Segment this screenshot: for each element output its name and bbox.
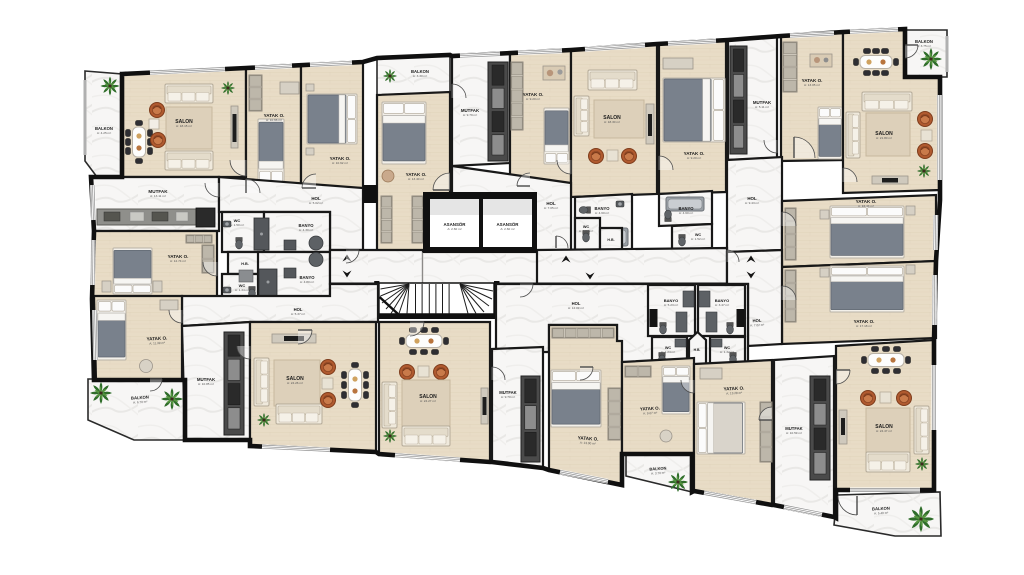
svg-text:A: 5.23 m²: A: 5.23 m² [664, 303, 678, 307]
svg-text:A: 2.60 m²: A: 2.60 m² [447, 227, 461, 231]
svg-text:A: 10.62 m²: A: 10.62 m² [332, 161, 348, 165]
svg-text:A: 9.70 m²: A: 9.70 m² [501, 395, 515, 399]
svg-text:A: 13.40 m²: A: 13.40 m² [408, 177, 424, 181]
svg-text:A: 5.40 m²: A: 5.40 m² [874, 511, 888, 516]
svg-text:A: 9.79 m²: A: 9.79 m² [463, 113, 477, 117]
svg-text:A: 13.28 m²: A: 13.28 m² [726, 391, 742, 396]
svg-text:A: 1.50 m²: A: 1.50 m² [230, 223, 244, 227]
svg-text:A: 24.47 m²: A: 24.47 m² [876, 429, 892, 433]
svg-text:A: 12.74 m²: A: 12.74 m² [170, 259, 186, 263]
svg-text:A: 1.34 m²: A: 1.34 m² [579, 229, 593, 233]
svg-text:A: 2.60 m²: A: 2.60 m² [500, 227, 514, 231]
svg-text:A: 9.43 m²: A: 9.43 m² [745, 201, 759, 205]
svg-text:H.B.: H.B. [241, 262, 249, 266]
svg-text:A: 1.24 m²: A: 1.24 m² [661, 350, 675, 354]
svg-text:A: 17.18 m²: A: 17.18 m² [856, 324, 872, 328]
svg-text:A: 10.59 m²: A: 10.59 m² [786, 431, 802, 435]
svg-text:A: 5.02 m²: A: 5.02 m² [309, 201, 323, 205]
svg-text:A: 21.80 m²: A: 21.80 m² [876, 136, 892, 140]
svg-text:A: 4.60 m²: A: 4.60 m² [679, 211, 693, 215]
svg-text:A: 3.75 m²: A: 3.75 m² [917, 44, 931, 48]
svg-text:A: 4.25 m²: A: 4.25 m² [97, 131, 111, 135]
svg-text:A: 3.30 m²: A: 3.30 m² [413, 74, 427, 78]
svg-text:A: 16.44 m²: A: 16.44 m² [858, 204, 874, 208]
svg-text:A: 1.32 m²: A: 1.32 m² [720, 350, 734, 354]
svg-text:A: 18.15 m²: A: 18.15 m² [176, 124, 192, 128]
svg-text:A: 4.60 m²: A: 4.60 m² [595, 211, 609, 215]
svg-text:A: 12.09 m²: A: 12.09 m² [568, 306, 584, 310]
svg-text:A: 7.05 m²: A: 7.05 m² [544, 206, 558, 210]
svg-text:A: 5.37 m²: A: 5.37 m² [291, 312, 305, 316]
svg-text:A: 24.27 m²: A: 24.27 m² [420, 399, 436, 403]
svg-text:A: 4.30 m²: A: 4.30 m² [299, 228, 313, 232]
svg-text:A: 1.34 m²: A: 1.34 m² [235, 288, 249, 292]
svg-text:A: 9.20 m²: A: 9.20 m² [687, 156, 701, 160]
svg-text:A: 4.80 m²: A: 4.80 m² [300, 280, 314, 284]
svg-text:A: 9.20 m²: A: 9.20 m² [526, 97, 540, 101]
svg-text:H.B.: H.B. [694, 348, 701, 352]
svg-text:A: 1.52 m²: A: 1.52 m² [691, 237, 705, 241]
svg-text:A: 7.02 m²: A: 7.02 m² [750, 323, 764, 328]
svg-text:H.B.: H.B. [607, 238, 614, 242]
svg-text:A: 9.67 m²: A: 9.67 m² [643, 411, 657, 416]
svg-text:A: 13.11 m²: A: 13.11 m² [150, 194, 166, 198]
svg-text:A: 3.47 m²: A: 3.47 m² [715, 303, 729, 307]
svg-text:A: 10.85 m²: A: 10.85 m² [198, 382, 214, 386]
svg-text:A: 18.30 m²: A: 18.30 m² [604, 120, 620, 124]
svg-text:A: 10.66 m²: A: 10.66 m² [266, 118, 282, 122]
svg-text:A: 5.11 m²: A: 5.11 m² [755, 105, 769, 109]
svg-text:A: 13.05 m²: A: 13.05 m² [804, 83, 820, 87]
svg-text:A: 11.39 m²: A: 11.39 m² [149, 341, 165, 346]
svg-text:A: 24.26 m²: A: 24.26 m² [287, 381, 303, 385]
